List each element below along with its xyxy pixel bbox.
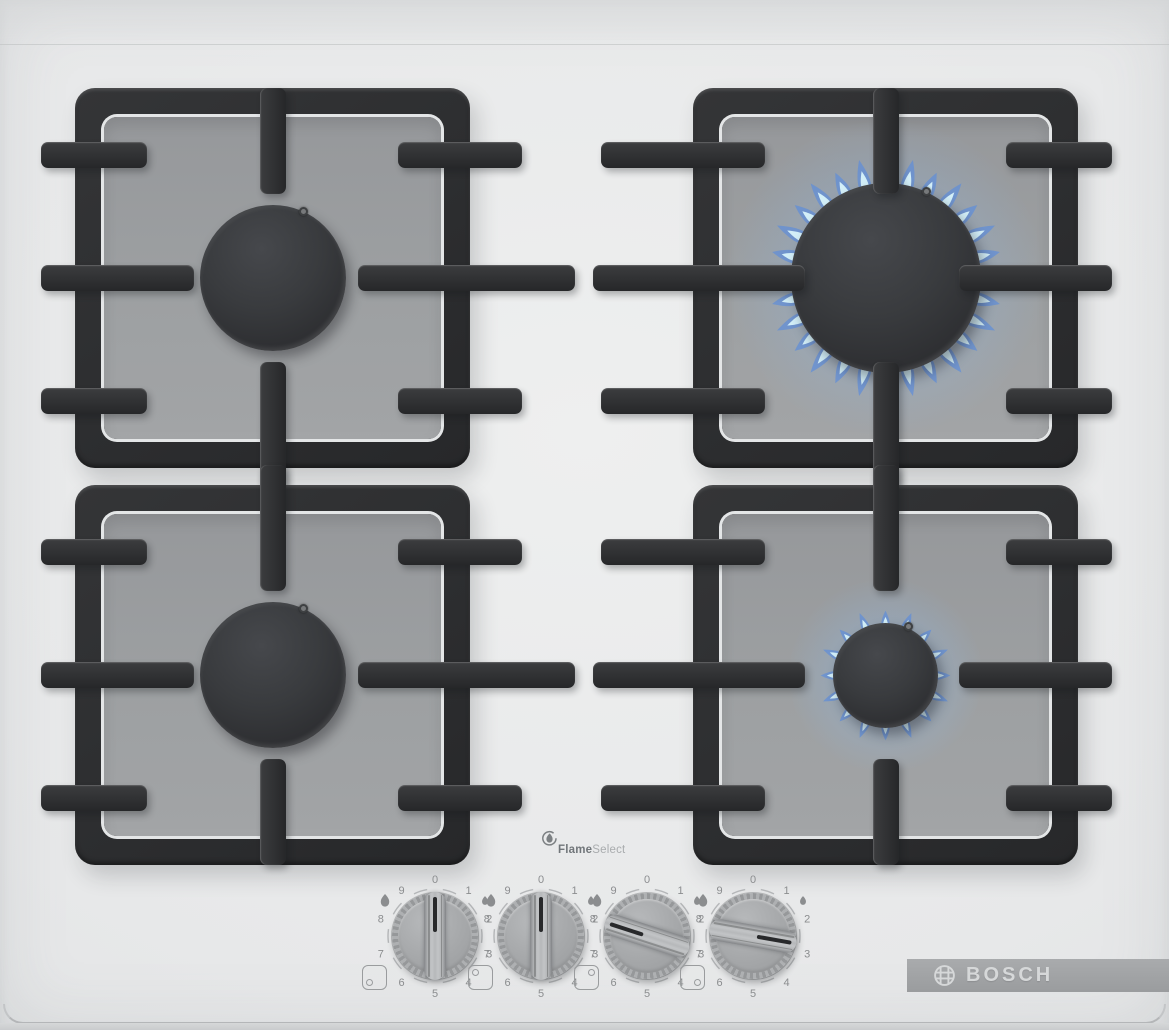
burner-position-icon-front-left xyxy=(362,965,387,990)
grate-finger xyxy=(601,539,765,565)
grate-finger xyxy=(41,785,147,811)
knob-unit-front-right: 0123456789 xyxy=(673,856,833,1016)
burner-position-icon-back-right xyxy=(574,965,599,990)
grate-finger xyxy=(260,88,286,194)
burner-position-icon-front-right xyxy=(680,965,705,990)
knob-indicator-mark xyxy=(539,897,544,932)
knob-scale-number: 7 xyxy=(378,949,384,961)
large-flame-icon xyxy=(699,894,707,907)
knob-handle xyxy=(530,892,552,980)
grate-finger xyxy=(593,662,805,688)
grate-finger xyxy=(593,265,805,291)
knob-groove xyxy=(534,895,536,977)
burner-position-dot xyxy=(694,979,701,986)
knob-scale-number: 0 xyxy=(432,874,438,886)
flameselect-flame-icon xyxy=(540,830,559,851)
burner-cap xyxy=(200,602,346,748)
grate-finger xyxy=(601,785,765,811)
grate-finger xyxy=(398,539,522,565)
knob-handle xyxy=(708,918,798,955)
knob-scale-number: 6 xyxy=(398,977,404,989)
grate-finger xyxy=(1006,142,1112,168)
grate-finger xyxy=(41,539,147,565)
knob-scale-number: 5 xyxy=(432,988,438,1000)
grate-finger xyxy=(398,142,522,168)
knob-scale-number: 6 xyxy=(504,977,510,989)
knob-scale-number: 9 xyxy=(398,885,404,897)
knob-scale-number: 0 xyxy=(538,874,544,886)
knob-scale-number: 4 xyxy=(783,977,789,989)
knob-scale-number: 6 xyxy=(716,977,722,989)
grate-finger xyxy=(873,759,899,865)
knob-scale-number: 5 xyxy=(538,988,544,1000)
knob-scale-number: 8 xyxy=(378,913,384,925)
grate-finger xyxy=(1006,388,1112,414)
burner-cap xyxy=(791,183,981,373)
grate-finger xyxy=(959,662,1112,688)
grate-finger xyxy=(873,465,899,591)
burner-zone-back-left xyxy=(75,88,470,468)
knob-scale-number: 8 xyxy=(484,913,490,925)
burner-cap xyxy=(200,205,346,351)
knob-scale-number: 7 xyxy=(484,949,490,961)
knob-scale-number: 9 xyxy=(610,885,616,897)
knob-scale-number: 5 xyxy=(750,988,756,1000)
knob-scale-number: 5 xyxy=(644,988,650,1000)
glass-top-bevel xyxy=(0,0,1169,45)
spark-igniter-icon xyxy=(922,187,931,196)
burner-position-icon-back-left xyxy=(468,965,493,990)
knob-scale-number: 0 xyxy=(750,874,756,886)
grate-finger xyxy=(41,142,147,168)
grate-finger xyxy=(41,662,194,688)
knob-groove xyxy=(428,895,430,977)
bosch-logo-bar: BOSCH xyxy=(907,959,1169,992)
grate-finger xyxy=(260,759,286,865)
knob-indicator-mark xyxy=(433,897,438,932)
burner-position-dot xyxy=(366,979,373,986)
knob-scale-number: 6 xyxy=(610,977,616,989)
burner-zone-front-left xyxy=(75,485,470,865)
knob-groove xyxy=(606,929,684,956)
knob-scale-number: 9 xyxy=(716,885,722,897)
grate-finger xyxy=(1006,785,1112,811)
knob-groove xyxy=(714,922,795,938)
glass-bottom-edge-fill xyxy=(0,1023,1169,1030)
knob-scale-number: 7 xyxy=(590,949,596,961)
knob-groove xyxy=(547,895,549,977)
grate-finger xyxy=(260,465,286,591)
grate-finger xyxy=(398,388,522,414)
grate-finger xyxy=(358,662,575,688)
knob-scale-number: 7 xyxy=(696,949,702,961)
knob-groove xyxy=(441,895,443,977)
knob-scale-number: 1 xyxy=(783,885,789,897)
large-flame-icon xyxy=(381,894,389,907)
knob-scale-number: 9 xyxy=(504,885,510,897)
large-flame-icon xyxy=(593,894,601,907)
grate-finger xyxy=(873,88,899,194)
knob-scale-number: 8 xyxy=(590,913,596,925)
grate-finger xyxy=(41,265,194,291)
burner-position-dot xyxy=(472,969,479,976)
knob-scale-number: 2 xyxy=(804,913,810,925)
knob-scale-number: 3 xyxy=(804,949,810,961)
cooktop-surface: FlameSelect BOSCH 0123456789012345678901… xyxy=(0,0,1169,1030)
bosch-logo-text: BOSCH xyxy=(966,964,1053,987)
burner-zone-front-right xyxy=(693,485,1078,865)
knob-front-right[interactable] xyxy=(710,893,796,979)
burner-position-dot xyxy=(588,969,595,976)
burner-zone-back-right xyxy=(693,88,1078,468)
grate-finger xyxy=(601,388,765,414)
knob-scale-number: 0 xyxy=(644,874,650,886)
grate-finger xyxy=(358,265,575,291)
grate-finger xyxy=(601,142,765,168)
grate-finger xyxy=(1006,539,1112,565)
flameselect-text-flame: Flame xyxy=(558,844,592,856)
grate-finger xyxy=(41,388,147,414)
small-flame-icon xyxy=(800,896,806,905)
burner-cap xyxy=(833,623,938,728)
knob-scale-number: 8 xyxy=(696,913,702,925)
bosch-emblem-icon xyxy=(933,964,956,987)
product-photo-stage: FlameSelect BOSCH 0123456789012345678901… xyxy=(0,0,1169,1030)
knob-handle xyxy=(424,892,446,980)
flameselect-text: FlameSelect xyxy=(558,844,625,856)
grate-finger xyxy=(398,785,522,811)
large-flame-icon xyxy=(487,894,495,907)
flameselect-text-select: Select xyxy=(592,844,625,856)
grate-finger xyxy=(959,265,1112,291)
